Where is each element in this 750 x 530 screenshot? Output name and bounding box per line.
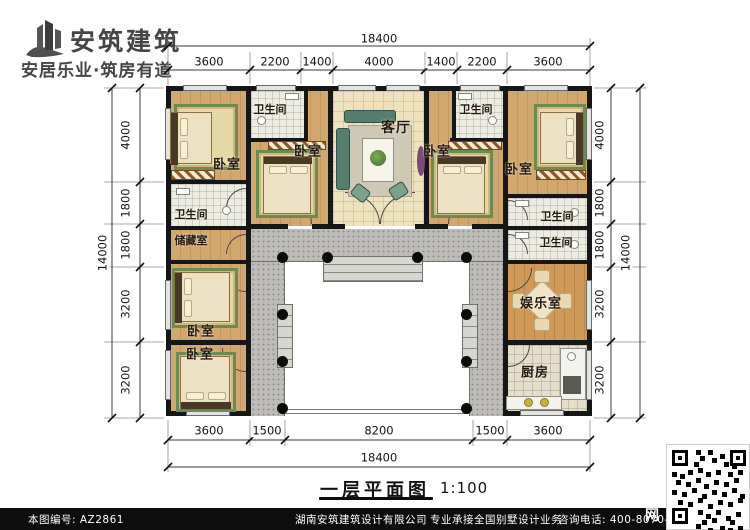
qr-finder [672, 508, 688, 524]
dim-top-total: 18400 [360, 33, 399, 45]
dim-left-total: 14000 [97, 234, 109, 273]
dim-left-seg: 1800 [120, 187, 132, 218]
footer-company: 湖南安筑建筑设计有限公司 [295, 512, 427, 527]
footer-net-char: 网 [645, 505, 659, 525]
dim-bottom-seg: 1500 [474, 425, 505, 437]
dim-top-seg: 3600 [193, 56, 224, 68]
dim-bottom-seg: 3600 [532, 425, 563, 437]
qr-finder [672, 450, 688, 466]
plan-scale: 1:100 [440, 479, 488, 497]
dim-right-seg: 3200 [594, 364, 606, 395]
dim-left-seg: 4000 [120, 119, 132, 150]
dim-bottom-total: 18400 [360, 452, 399, 464]
dim-left-seg: 3200 [120, 288, 132, 319]
dim-bottom-seg: 3600 [193, 425, 224, 437]
dim-top-seg: 3600 [532, 56, 563, 68]
qr-modules [672, 472, 677, 477]
dim-left-seg: 3200 [120, 364, 132, 395]
dim-bottom-seg: 8200 [363, 425, 394, 437]
dim-top-seg: 1400 [301, 56, 332, 68]
dim-top-seg: 1400 [425, 56, 456, 68]
dim-right-seg: 1800 [594, 187, 606, 218]
footer-bar: 本图编号: AZ2861 湖南安筑建筑设计有限公司 专业承接全国别墅设计业务 咨… [0, 508, 750, 530]
title-underline [319, 497, 433, 500]
plan-number: 本图编号: AZ2861 [28, 512, 124, 527]
footer-service: 专业承接全国别墅设计业务 [430, 512, 562, 527]
dim-left-seg: 1800 [120, 229, 132, 260]
dim-right-seg: 3200 [594, 288, 606, 319]
dim-right-seg: 4000 [594, 119, 606, 150]
dim-top-seg: 4000 [363, 56, 394, 68]
page: 安筑建筑 安居乐业·筑房有道 安筑建筑 安筑建筑 安筑建筑 安筑建筑 [0, 0, 750, 530]
qr-finder [730, 450, 746, 466]
dim-right-total: 14000 [620, 234, 632, 273]
qr-code [666, 444, 750, 530]
dim-bottom-seg: 1500 [251, 425, 282, 437]
dim-top-seg: 2200 [466, 56, 497, 68]
dim-right-seg: 1800 [594, 229, 606, 260]
dim-top-seg: 2200 [259, 56, 290, 68]
